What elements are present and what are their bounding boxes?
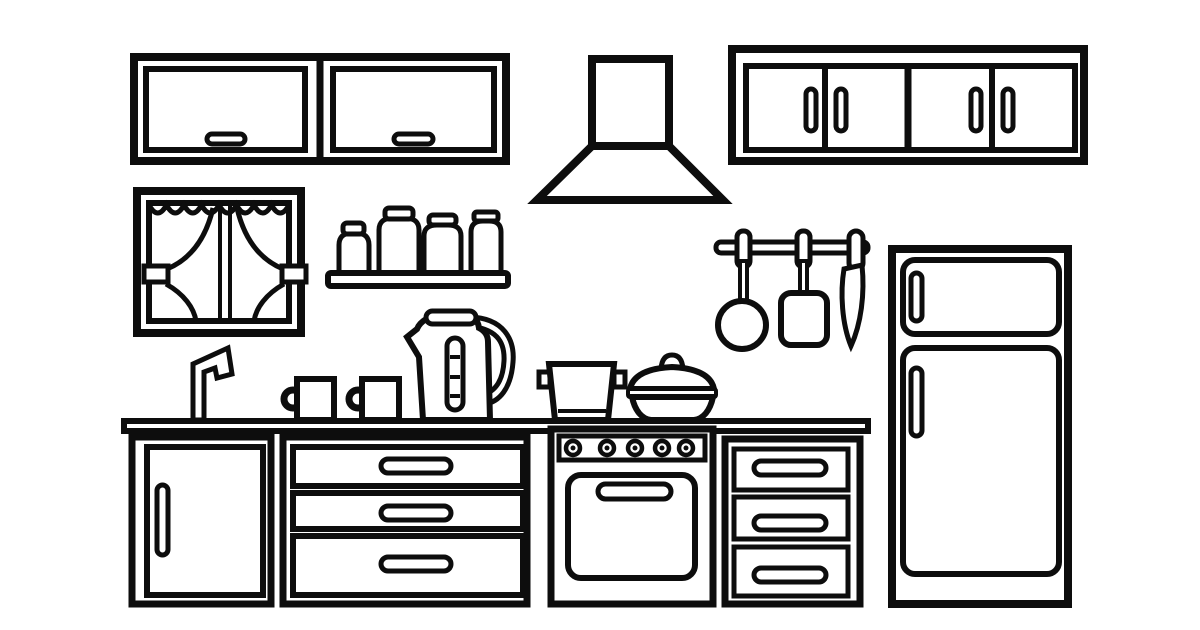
jar-lid [429, 215, 456, 225]
utensil-rail [716, 231, 868, 349]
wall-cabinet-right [732, 49, 1084, 161]
jar-lid [343, 223, 364, 234]
casserole-body [632, 397, 713, 420]
curtain-tieback [282, 266, 306, 282]
spatula-blade [781, 293, 827, 345]
drawer-handle [381, 557, 451, 571]
jar [471, 221, 501, 274]
jar-lid [474, 212, 498, 221]
cabinet-handle [394, 134, 433, 144]
base-cabinet [132, 437, 271, 604]
drawer-handle [381, 506, 451, 520]
stove-knob-dot [633, 446, 638, 451]
ladle-handle [740, 261, 747, 303]
drawer-handle [754, 516, 826, 530]
refrigerator-handle [911, 368, 922, 436]
drawer-handle [381, 459, 451, 473]
mug [362, 379, 399, 420]
wall-cabinet-left [134, 57, 506, 161]
drawer-unit-left [283, 437, 527, 604]
stove-knob-dot [660, 446, 665, 451]
cabinet-handle [836, 89, 846, 131]
drawer-handle [754, 461, 826, 475]
kettle-lid [426, 311, 476, 324]
stove-knob-dot [571, 446, 576, 451]
shelf-board [328, 273, 508, 286]
cabinet-handle [971, 89, 981, 131]
cabinet-handle [806, 89, 816, 131]
drawer-handle [754, 568, 826, 582]
cabinet-handle [157, 485, 168, 555]
curtain-tieback [144, 266, 168, 282]
stove [551, 429, 713, 604]
range-hood-duct [592, 59, 669, 146]
jar-lid [385, 208, 413, 219]
freezer-handle [911, 273, 922, 321]
freezer-door [903, 260, 1059, 334]
ladle-bowl [718, 301, 766, 349]
cabinet-handle [207, 134, 245, 144]
window [137, 191, 306, 333]
drawer-unit-right [725, 439, 860, 604]
kitchen-line-art-scene [0, 0, 1200, 630]
oven-handle [598, 484, 671, 499]
kettle-water-gauge [447, 338, 463, 410]
stove-knob-dot [605, 446, 610, 451]
stove-knob-dot [684, 446, 689, 451]
jar [339, 233, 369, 274]
refrigerator [892, 249, 1068, 604]
cabinet-handle [1003, 89, 1013, 131]
mug [297, 379, 334, 420]
kitchen-illustration [0, 0, 1200, 630]
jar [379, 218, 419, 274]
casserole-lid [630, 367, 714, 389]
countertop [124, 421, 868, 431]
jar [424, 225, 461, 274]
refrigerator-door [903, 348, 1059, 574]
